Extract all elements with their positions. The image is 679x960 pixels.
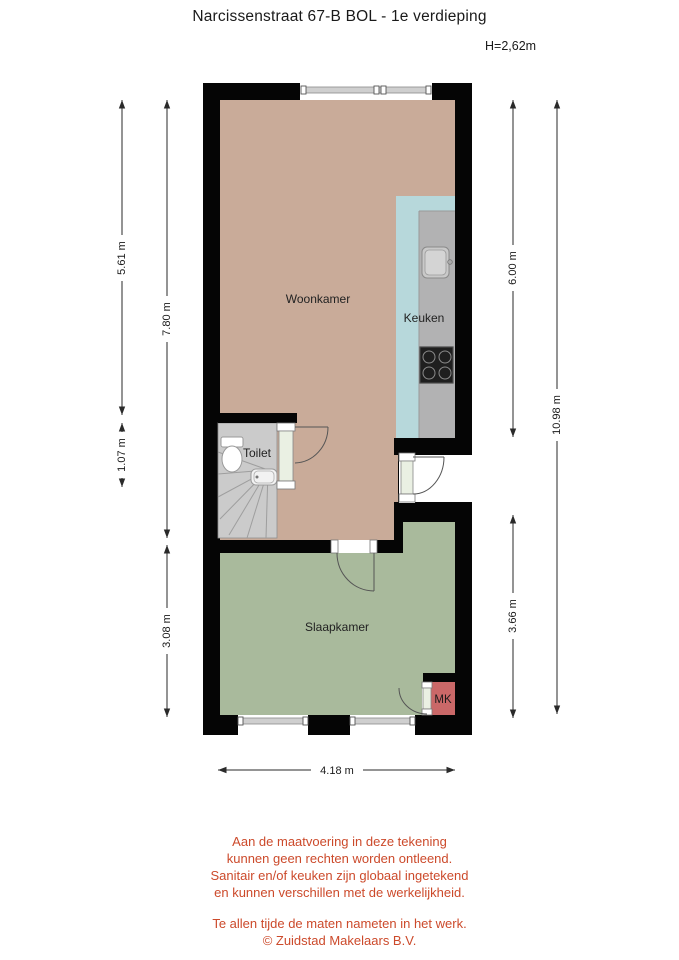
disclaimer-line: kunnen geen rechten worden ontleend. [0, 850, 679, 867]
dim-upper-section-left: 7.80 m [161, 302, 173, 336]
wc-fixture [221, 437, 243, 472]
dim-total-right: 10.98 m [551, 395, 563, 435]
window-bottom-right [350, 715, 415, 735]
copyright-line: © Zuidstad Makelaars B.V. [0, 932, 679, 949]
dim-woonkamer-left: 5.61 m [116, 241, 128, 275]
disclaimer-line: en kunnen verschillen met de werkelijkhe… [0, 884, 679, 901]
window-top [300, 83, 432, 100]
slaapkamer-label: Slaapkamer [305, 620, 369, 634]
meterkast-label: MK [434, 694, 452, 706]
disclaimer-line: Aan de maatvoering in deze tekening [0, 833, 679, 850]
dim-total-width-bottom: 4.18 m [320, 765, 354, 777]
dim-slaapkamer-right: 3.66 m [507, 599, 519, 633]
disclaimer-line: Te allen tijde de maten nameten in het w… [0, 915, 679, 932]
disclaimer-paragraph-2: Te allen tijde de maten nameten in het w… [0, 915, 679, 949]
toilet-label: Toilet [243, 446, 272, 460]
dim-toilet-left: 1.07 m [116, 438, 128, 472]
dim-upper-section-right: 6.00 m [507, 251, 519, 285]
floorplan: Woonkamer Keuken Toilet Slaapkamer MK 5.… [0, 0, 679, 960]
window-bottom-left [238, 715, 308, 735]
disclaimer-line: Sanitair en/of keuken zijn globaal inget… [0, 867, 679, 884]
woonkamer-label: Woonkamer [286, 292, 350, 306]
sink-fixture [422, 247, 452, 278]
floorplan-page: Narcissenstraat 67-B BOL - 1e verdieping… [0, 0, 679, 960]
disclaimer: Aan de maatvoering in deze tekening kunn… [0, 833, 679, 949]
disclaimer-paragraph-1: Aan de maatvoering in deze tekening kunn… [0, 833, 679, 901]
basin-fixture [251, 469, 277, 485]
stove-fixture [420, 347, 453, 383]
keuken-label: Keuken [404, 311, 445, 325]
dim-slaapkamer-left: 3.08 m [161, 614, 173, 648]
